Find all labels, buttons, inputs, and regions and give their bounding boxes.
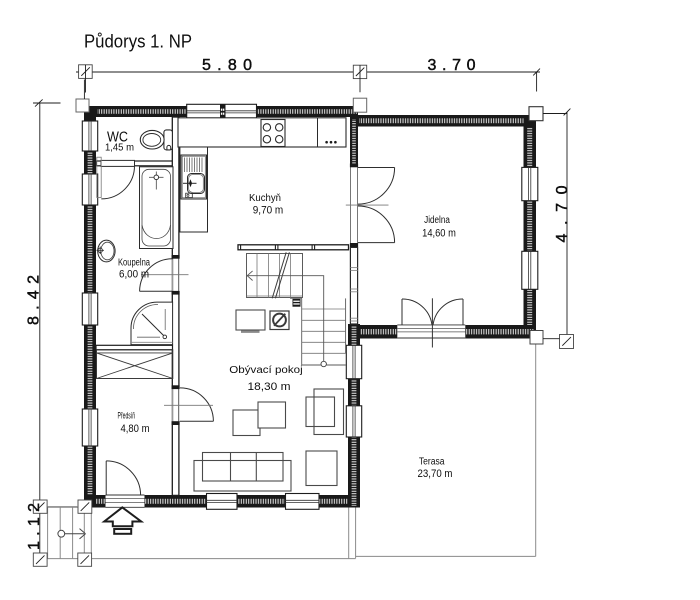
svg-text:5.80: 5.80 <box>202 57 252 74</box>
svg-text:8.42: 8.42 <box>26 275 43 325</box>
svg-text:23,70 m: 23,70 m <box>418 468 453 480</box>
svg-text:3.70: 3.70 <box>428 57 476 74</box>
svg-text:Terasa: Terasa <box>419 457 445 468</box>
svg-text:Obývací pokoj: Obývací pokoj <box>229 365 302 376</box>
svg-text:4,80 m: 4,80 m <box>121 423 150 435</box>
svg-text:1.12: 1.12 <box>26 503 43 550</box>
svg-text:Jidelna: Jidelna <box>424 215 450 226</box>
svg-text:Kuchyň: Kuchyň <box>249 192 281 204</box>
svg-text:Předsíň: Předsíň <box>118 411 136 421</box>
svg-text:Koupelna: Koupelna <box>118 258 150 269</box>
svg-text:18,30 m: 18,30 m <box>248 381 291 393</box>
svg-text:6,00 m: 6,00 m <box>119 269 149 281</box>
svg-text:1,45 m: 1,45 m <box>105 142 134 154</box>
svg-text:9,70 m: 9,70 m <box>253 205 284 217</box>
svg-text:Půdorys 1. NP: Půdorys 1. NP <box>84 31 192 52</box>
svg-text:14,60 m: 14,60 m <box>422 228 456 240</box>
